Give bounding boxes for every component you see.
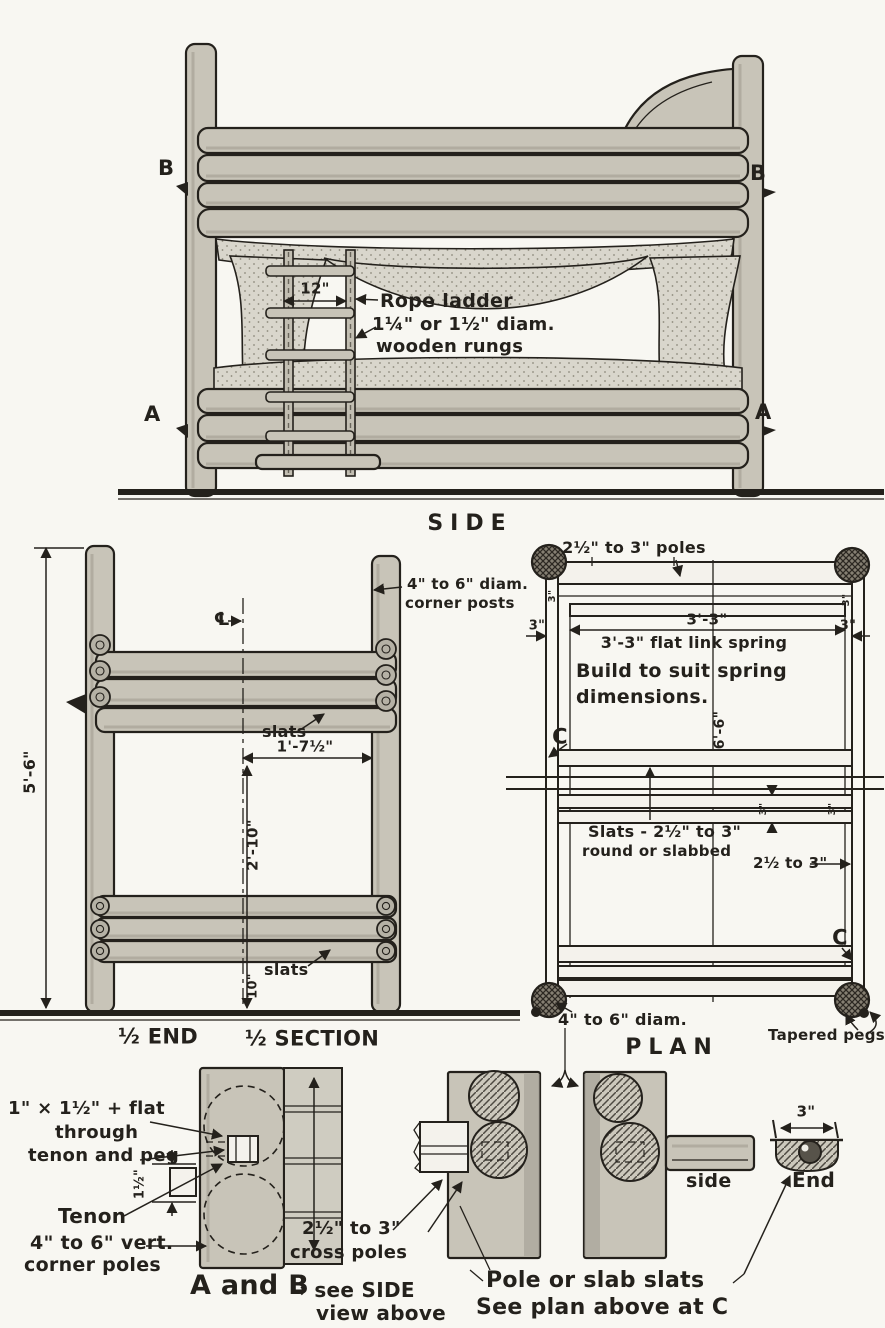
- marker-a-right: A: [755, 402, 772, 423]
- tapered-pegs-note: Tapered pegs: [768, 1028, 885, 1043]
- cross-pole-tenon-block: [420, 1122, 468, 1172]
- plan-top-cross-pole: [558, 562, 852, 584]
- end-width-dim: 3": [797, 1105, 816, 1120]
- tenon-spec-3: tenon and peg: [28, 1147, 179, 1165]
- small-dim-rail-right: 3": [842, 594, 852, 607]
- slat-section-circle: [601, 1123, 659, 1181]
- slat-size-dim: 2½ to 3": [753, 856, 828, 871]
- small-dim-rail-left: 3": [548, 590, 558, 603]
- c-marker-left: C: [552, 727, 568, 748]
- plan-length-dim: 6'-6": [713, 711, 727, 749]
- slats-reference-1: Pole or slab slats: [486, 1270, 704, 1292]
- side-view-drawing: [118, 44, 884, 499]
- plan-slat-band-a: [558, 750, 852, 766]
- c-marker-right: C: [832, 928, 848, 949]
- marker-a-left: A: [144, 404, 161, 425]
- slat-section-circle: [471, 1122, 527, 1178]
- tapered-peg: [859, 1008, 869, 1018]
- rope-ladder-note-3: wooden rungs: [376, 338, 523, 356]
- plan-title: PLAN: [625, 1037, 719, 1059]
- tapered-peg: [531, 1007, 541, 1017]
- working-drawing-sheet: B B A A 12" Rope ladder 1¼" or 1½" diam.…: [0, 0, 885, 1328]
- bunk-spacing-dim: 2'-10": [246, 819, 261, 871]
- details-drawing: [124, 1068, 843, 1283]
- tenon-label: Tenon: [58, 1206, 126, 1226]
- tenon-end: [170, 1168, 196, 1196]
- slat-section-circle: [469, 1071, 519, 1121]
- rail-peg: [66, 694, 86, 714]
- build-note-2: dimensions.: [576, 688, 709, 707]
- slat-side-view: [666, 1136, 754, 1170]
- overall-height-dim: 5'-6": [22, 750, 38, 794]
- upper-bunk-rails: [198, 128, 748, 237]
- ab-reference-above: view above: [316, 1303, 446, 1323]
- plan-bottom-cross-pole: [558, 980, 852, 996]
- rope-ladder-note-1: Rope ladder: [380, 292, 513, 311]
- marker-b-left: B: [158, 158, 174, 179]
- tenon-spec-1: 1" × 1½" + flat: [8, 1100, 165, 1118]
- cross-pole-note-2: cross poles: [290, 1244, 407, 1262]
- slats-reference-2: See plan above at C: [476, 1297, 728, 1319]
- post-diam-note: 4" to 6" diam.: [558, 1012, 687, 1028]
- plan-corner-post: [532, 545, 566, 579]
- corner-post-note-1: 4" to 6" diam.: [407, 577, 528, 592]
- plan-slat-band-b: [558, 795, 852, 808]
- small-dim-right: 3": [840, 620, 856, 633]
- centerline-symbol: ℄: [214, 611, 230, 629]
- small-dim-slat-a: 3": [759, 803, 769, 816]
- slats-label-lower: slats: [264, 962, 308, 978]
- floor-clearance-dim: 10": [247, 973, 260, 999]
- slat-section-circle: [594, 1074, 642, 1122]
- poles-dim-note: 2½" to 3" poles: [562, 540, 706, 556]
- rope-ladder-note-2: 1¼" or 1½" diam.: [372, 316, 555, 334]
- end-section-drawing: [0, 546, 520, 1020]
- tenon-spec-2: through: [55, 1124, 138, 1142]
- marker-b-right: B: [750, 163, 766, 184]
- peg-b-right: [763, 188, 776, 198]
- small-dim-left: 3": [529, 620, 545, 633]
- spring-width-dim: 3'-3": [686, 613, 727, 628]
- tenon-width-dim: 1½": [134, 1169, 147, 1199]
- half-width-dim: 1'-7½": [277, 740, 334, 755]
- plan-corner-post: [835, 548, 869, 582]
- half-section-title: ½ SECTION: [245, 1029, 379, 1050]
- spring-note: 3'-3" flat link spring: [601, 635, 788, 651]
- slat-side-label: side: [686, 1172, 732, 1191]
- ground-line: [118, 489, 884, 495]
- plan-slats-note-1: Slats - 2½" to 3": [588, 824, 741, 840]
- plan-slat-band-d: [558, 946, 852, 962]
- small-dim-slat-b: 3": [828, 803, 838, 816]
- corner-pole-note-2: corner poles: [24, 1256, 161, 1275]
- peg-a-left: [176, 424, 188, 438]
- ab-reference-see: → see SIDE: [290, 1280, 415, 1300]
- slat-end-label: End: [792, 1170, 835, 1190]
- slat-end-section: [770, 1120, 843, 1171]
- plan-slat-band-e: [558, 966, 852, 978]
- corner-pole-note-1: 4" to 6" vert.: [30, 1234, 173, 1253]
- side-view-title: SIDE: [427, 513, 512, 535]
- tenon-mortise: [228, 1136, 258, 1162]
- corner-post-note-2: corner posts: [405, 596, 515, 611]
- ladder-width-dim: 12": [300, 282, 330, 297]
- plan-slats-note-2: round or slabbed: [582, 844, 731, 859]
- cross-pole-note-1: 2½" to 3": [302, 1220, 401, 1238]
- peg-b-left: [176, 182, 188, 196]
- floor-line: [0, 1010, 520, 1016]
- half-end-title: ½ END: [118, 1027, 198, 1048]
- peg-a-right: [763, 426, 776, 436]
- build-note-1: Build to suit spring: [576, 662, 787, 681]
